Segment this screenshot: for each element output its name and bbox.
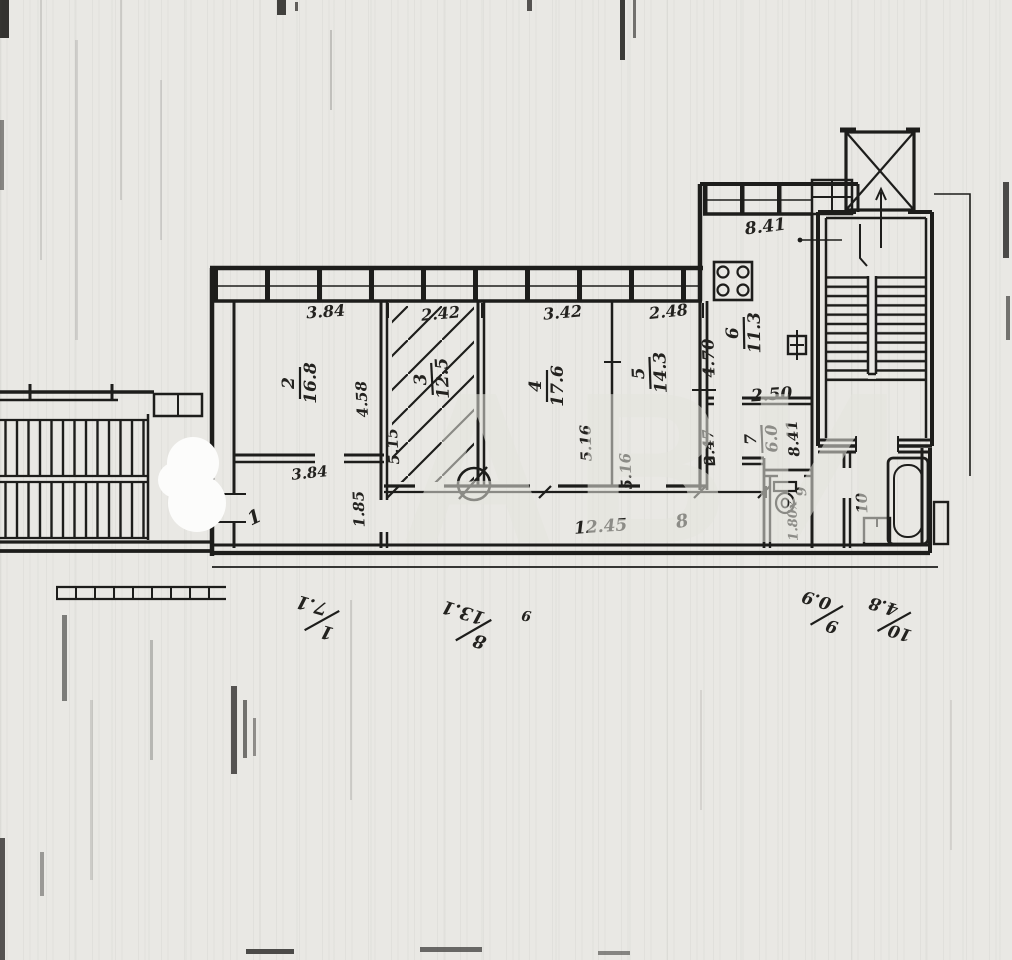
room-2-label: 2 16.8 — [279, 362, 321, 404]
window-band — [210, 268, 703, 301]
dim-kitchen-depth: 4.70 — [698, 338, 718, 378]
svg-text:2: 2 — [279, 377, 299, 390]
svg-text:9: 9 — [823, 614, 840, 637]
svg-text:7: 7 — [741, 433, 760, 445]
svg-text:3: 3 — [411, 373, 432, 386]
svg-text:11.3: 11.3 — [745, 312, 766, 354]
dim-room3-width: 2.42 — [419, 302, 460, 324]
dim-room1-width: 3.84 — [290, 462, 328, 484]
whiteout-blobs — [158, 437, 226, 532]
right-staircase — [818, 189, 970, 476]
dim-room5-width: 2.48 — [647, 300, 689, 323]
dim-room7-width: 2.50 — [749, 384, 793, 407]
kitchen-window-band — [700, 180, 858, 214]
dim-room7-depth: 2.47 — [699, 428, 720, 467]
room-1-number: 1 — [244, 505, 265, 531]
dim-wc: 1.80х — [785, 501, 801, 541]
svg-text:4.8: 4.8 — [867, 592, 901, 619]
dim-corridor-length: 12.45 — [573, 515, 627, 539]
room-9-number: 9 — [794, 486, 811, 497]
svg-text:14.3: 14.3 — [650, 351, 671, 393]
note-kitchen: 8.41 — [743, 215, 788, 240]
footer-note-room9: 9 0.9 — [794, 586, 847, 637]
dim-room3-depth: 5.15 — [383, 427, 404, 465]
svg-text:13.1: 13.1 — [439, 595, 487, 628]
room-7-label: 7 6.0 — [741, 424, 782, 453]
svg-text:0.9: 0.9 — [800, 586, 834, 613]
svg-text:4: 4 — [526, 380, 546, 392]
room-5-label: 5 14.3 — [628, 351, 671, 394]
stove-icon — [714, 262, 752, 300]
svg-text:5: 5 — [629, 367, 649, 380]
dim-room5-depth: 5.16 — [616, 452, 636, 490]
wash-basin-icon — [864, 518, 890, 544]
stray-mark: 9 — [520, 606, 532, 623]
footer-note-room1: 1 7.1 — [288, 590, 342, 643]
svg-text:8: 8 — [470, 629, 490, 653]
dim-room2-depth: 4.58 — [352, 380, 372, 418]
dim-corridor-width: 1.85 — [349, 491, 368, 528]
svg-text:16.8: 16.8 — [301, 362, 321, 404]
room-4-label: 4 17.6 — [526, 365, 568, 407]
room-10-number: 10 — [852, 492, 871, 514]
svg-text:6.0: 6.0 — [762, 424, 782, 452]
floor-plan-scan: 2 16.8 3 12.5 4 17.6 5 14.3 6 11.3 7 6.0 — [0, 0, 1012, 960]
dim-room4-width: 3.42 — [542, 301, 582, 323]
svg-text:17.6: 17.6 — [548, 365, 568, 407]
note-hall: 8.41 — [782, 419, 803, 457]
room-6-kitchen-label: 6 11.3 — [723, 312, 766, 354]
kitchen-sink-icon — [788, 330, 806, 360]
dim-room2-width: 3.84 — [306, 301, 346, 323]
footer-note-room10: 10 4.8 — [861, 592, 920, 645]
floor-plan-drawing: 2 16.8 3 12.5 4 17.6 5 14.3 6 11.3 7 6.0 — [0, 0, 1012, 960]
svg-text:12.5: 12.5 — [432, 357, 454, 399]
svg-text:6: 6 — [723, 327, 743, 339]
room-8-number: 8 — [673, 510, 690, 533]
dim-room4-depth: 5.16 — [576, 424, 595, 462]
svg-text:1: 1 — [318, 620, 336, 644]
footer-note-room8: 8 13.1 — [433, 595, 497, 653]
facade-tick-band — [56, 587, 226, 599]
svg-text:7.1: 7.1 — [294, 590, 330, 619]
